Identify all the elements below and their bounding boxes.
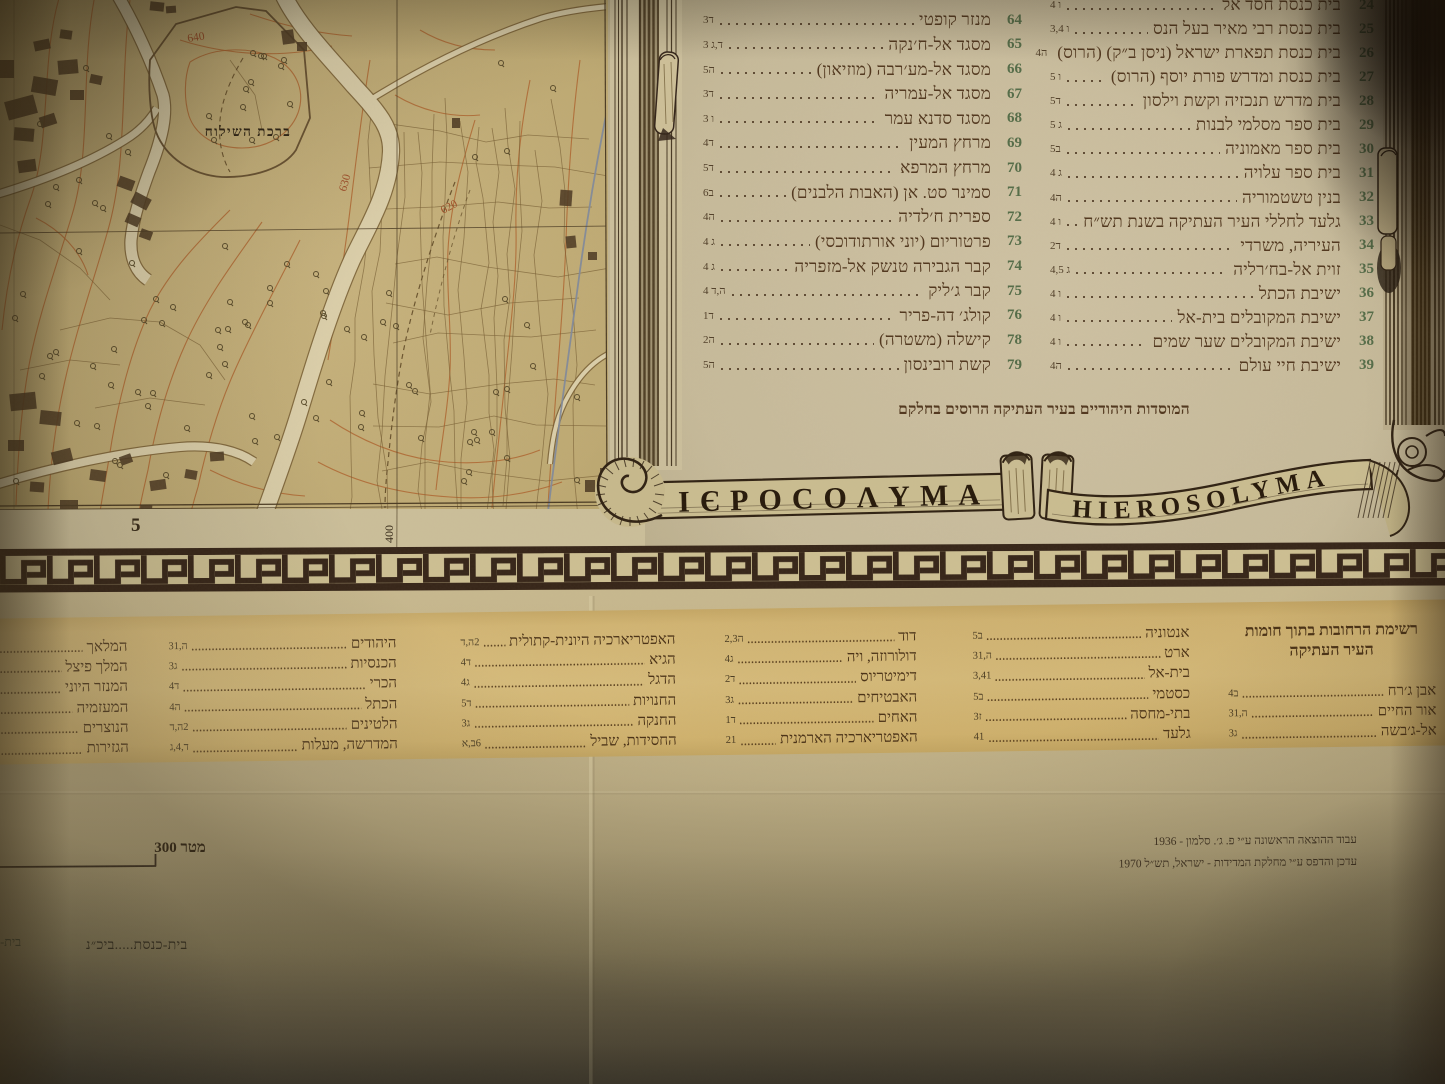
svg-text:400: 400 [382, 525, 396, 543]
svg-text:ברכת השילוח: ברכת השילוח [205, 124, 291, 139]
svg-text:5: 5 [131, 515, 141, 536]
